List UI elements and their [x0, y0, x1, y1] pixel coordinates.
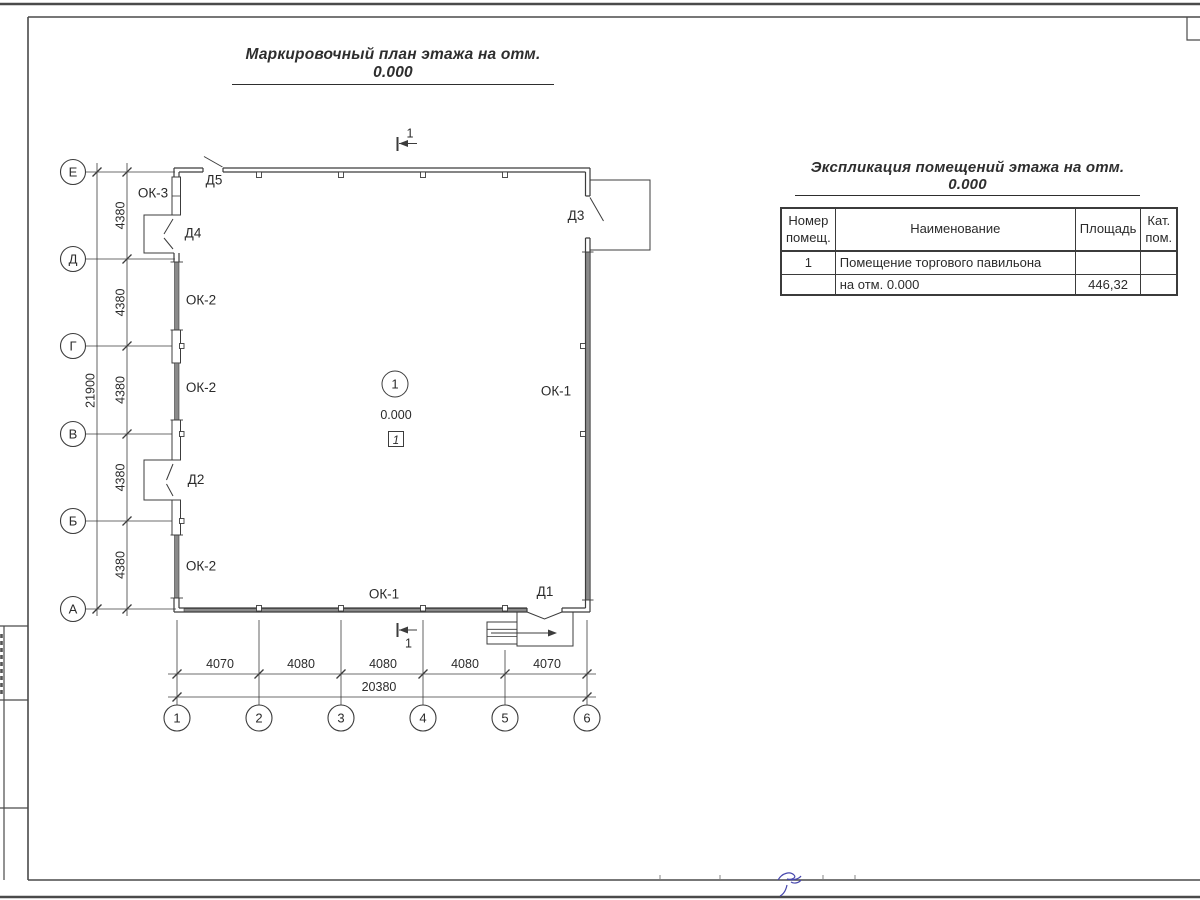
dim-4380-4: 4380 [114, 464, 128, 492]
floor-number-box: 1 [393, 435, 399, 447]
label-d4: Д4 [185, 226, 202, 241]
vertical-dimensions: 21900 4380 4380 4380 4380 4380 [84, 163, 132, 616]
table-row: на отм. 0.000 446,32 [781, 274, 1177, 295]
page-title: Маркировочный план этажа на отм. 0.000 [232, 46, 554, 85]
label-d3: Д3 [568, 208, 585, 223]
door-d3-leaf [590, 198, 604, 222]
door-d2-vestibule [144, 460, 174, 500]
label-d5: Д5 [206, 173, 223, 188]
column-marks [257, 172, 508, 611]
building-walls [144, 157, 650, 647]
window-ok1-band [586, 252, 590, 600]
dim-total-vertical: 21900 [84, 373, 98, 408]
header-room-number: Номерпомещ. [781, 208, 835, 251]
top-wall [174, 157, 590, 173]
dim-4080-1: 4080 [287, 657, 315, 671]
grid-number-3: 3 [337, 711, 344, 726]
dim-4080-3: 4080 [451, 657, 479, 671]
label-ok1-right: ОК-1 [541, 384, 571, 399]
cell-room-name: Помещение торгового павильона [835, 251, 1075, 274]
dim-4380-5: 4380 [114, 551, 128, 579]
axis-letter-v: В [69, 427, 78, 442]
axis-letter-a: А [69, 602, 78, 617]
grid-number-5: 5 [501, 711, 508, 726]
door-d2-leaf [167, 464, 174, 496]
drawing-sheet: Е Д Г В Б А 21900 4380 4380 4380 4380 [0, 0, 1200, 900]
label-ok2-middle: ОК-2 [186, 380, 216, 395]
window-ok2-middle [175, 363, 180, 420]
dim-4380-3: 4380 [114, 376, 128, 404]
room-number-tag: 1 [391, 377, 398, 392]
section-label-top: 1 [407, 127, 414, 141]
horizontal-dimensions: 4070 4080 4080 4080 4070 20380 [168, 657, 596, 702]
porch-right [590, 180, 650, 250]
cell-room-area: 446,32 [1075, 274, 1141, 295]
label-d2: Д2 [188, 472, 205, 487]
axis-letter-b: Б [69, 514, 78, 529]
header-category: Кат.пом. [1141, 208, 1177, 251]
inner-frame [28, 17, 1200, 880]
room-schedule-table: Номерпомещ. Наименование Площадь Кат.пом… [780, 207, 1178, 296]
window-ok2-upper [175, 262, 180, 330]
grid-number-4: 4 [419, 711, 426, 726]
label-ok1-bottom: ОК-1 [369, 587, 399, 602]
grid-number-6: 6 [583, 711, 590, 726]
dim-total-horizontal: 20380 [362, 680, 397, 694]
dim-4070-2: 4070 [533, 657, 561, 671]
porch-bottom [487, 612, 573, 646]
left-wall [144, 168, 184, 612]
bottom-wall [174, 608, 590, 619]
cell-room-category [1141, 274, 1177, 295]
door-d1-leaf [527, 612, 562, 619]
header-area: Площадь [1075, 208, 1141, 251]
table-row: 1 Помещение торгового павильона [781, 251, 1177, 274]
room-annotations: 1 0.000 1 [380, 371, 411, 447]
axis-letter-g: Г [69, 339, 76, 354]
window-ok2-lower [175, 535, 180, 598]
cell-room-number [781, 274, 835, 295]
door-d4-vestibule [144, 215, 174, 253]
cell-room-name: на отм. 0.000 [835, 274, 1075, 295]
dim-4070-1: 4070 [206, 657, 234, 671]
axis-column-markers: 1 2 3 4 5 6 [164, 620, 600, 731]
axis-letter-d: Д [69, 252, 78, 267]
header-name: Наименование [835, 208, 1075, 251]
section-mark-bottom: 1 [398, 623, 418, 651]
dim-4380-2: 4380 [114, 289, 128, 317]
stamp-column [0, 626, 28, 880]
corner-box [1187, 17, 1200, 40]
cell-room-category [1141, 251, 1177, 274]
table-header-row: Номерпомещ. Наименование Площадь Кат.пом… [781, 208, 1177, 251]
right-wall [581, 168, 604, 612]
label-ok2-lower: ОК-2 [186, 559, 216, 574]
section-mark-top: 1 [398, 127, 418, 152]
label-d1: Д1 [537, 584, 554, 599]
dim-4080-2: 4080 [369, 657, 397, 671]
dim-4380-1: 4380 [114, 202, 128, 230]
axis-letter-e: Е [69, 165, 78, 180]
frame-tick-marks [660, 875, 855, 879]
section-label-bottom: 1 [405, 637, 412, 651]
door-d4-leaf [164, 219, 173, 249]
plan-labels: ОК-3 Д5 Д4 ОК-2 ОК-2 ОК-2 Д2 Д3 ОК-1 ОК-… [138, 173, 585, 602]
cell-room-number: 1 [781, 251, 835, 274]
signature-scribble [778, 873, 801, 896]
drawing-canvas: Е Д Г В Б А 21900 4380 4380 4380 4380 [0, 0, 1200, 900]
grid-number-1: 1 [173, 711, 180, 726]
elevation-mark: 0.000 [380, 408, 411, 422]
label-ok2-upper: ОК-2 [186, 293, 216, 308]
schedule-title: Экспликация помещений этажа на отм. 0.00… [795, 159, 1140, 196]
door-d5-leaf [204, 157, 223, 168]
cell-room-area [1075, 251, 1141, 274]
grid-number-2: 2 [255, 711, 262, 726]
label-ok3: ОК-3 [138, 186, 168, 201]
